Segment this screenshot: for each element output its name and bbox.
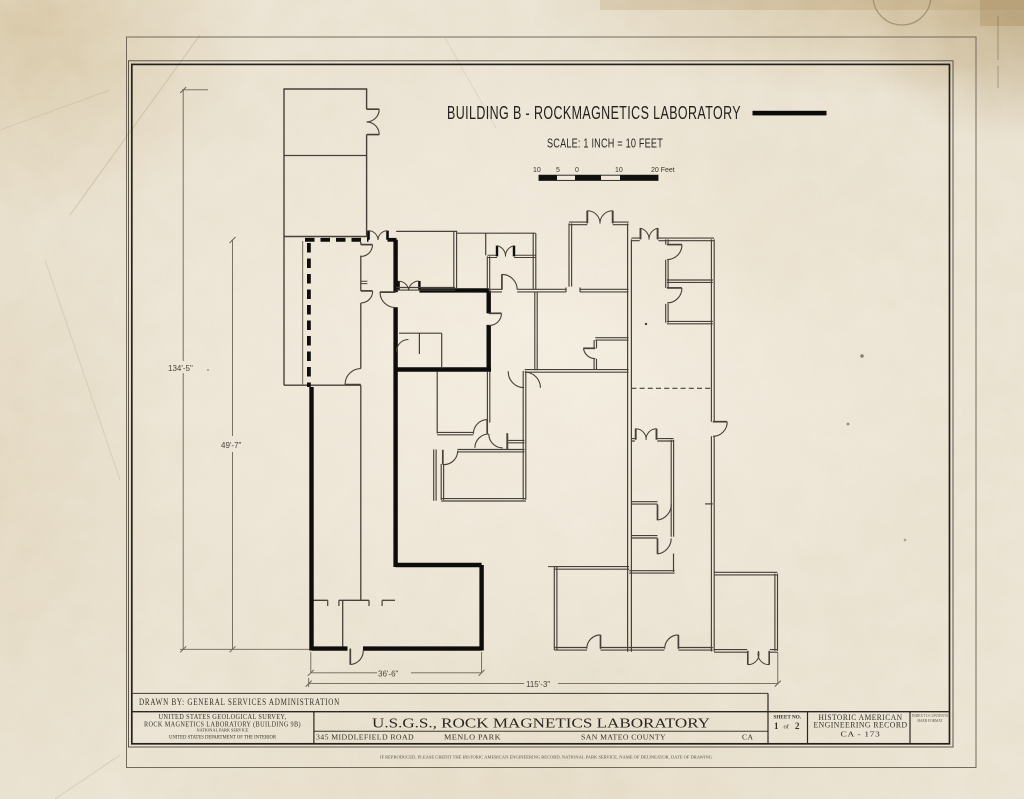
svg-text:NATIONAL PARK SERVICE: NATIONAL PARK SERVICE	[197, 728, 249, 733]
svg-text:0: 0	[575, 167, 579, 174]
svg-text:2: 2	[795, 721, 800, 731]
svg-text:SHEET NO.: SHEET NO.	[774, 715, 802, 721]
svg-text:DRAWN BY: GENERAL SERVICES AD: DRAWN BY: GENERAL SERVICES ADMINISTRATIO…	[139, 698, 340, 708]
svg-text:10: 10	[533, 167, 541, 174]
svg-text:MENLO PARK: MENLO PARK	[444, 733, 501, 742]
svg-text:UNITED STATES DEPARTMENT OF TH: UNITED STATES DEPARTMENT OF THE INTERIOR	[169, 736, 277, 741]
svg-text:SAN MATEO COUNTY: SAN MATEO COUNTY	[581, 733, 666, 742]
svg-text:134'-5": 134'-5"	[168, 364, 193, 373]
svg-text:36'-6": 36'-6"	[378, 670, 399, 679]
svg-text:U.S.G.S., ROCK MAGNETICS LA: U.S.G.S., ROCK MAGNETICS LABORATORY	[372, 716, 710, 731]
svg-text:CA: CA	[742, 733, 753, 742]
svg-text:5: 5	[556, 167, 560, 174]
svg-text:INDEX TO CONTENTS: INDEX TO CONTENTS	[912, 714, 948, 718]
svg-text:BUILDING B - ROCKMAGNETICS LAB: BUILDING B - ROCKMAGNETICS LABORATORY	[447, 103, 741, 123]
svg-text:CA - 173: CA - 173	[841, 730, 881, 739]
svg-text:115'-3": 115'-3"	[526, 680, 550, 689]
svg-text:ENGINEERING RECORD: ENGINEERING RECORD	[814, 721, 908, 730]
svg-text:1: 1	[774, 721, 779, 731]
svg-text:20 Feet: 20 Feet	[651, 167, 675, 174]
svg-text:10: 10	[615, 167, 623, 174]
svg-text:345 MIDDLEFIELD ROAD: 345 MIDDLEFIELD ROAD	[316, 733, 414, 742]
svg-text:of: of	[784, 724, 790, 731]
svg-text:49'-7": 49'-7"	[221, 441, 242, 450]
svg-text:SCALE: 1 INCH = 10 FEET: SCALE: 1 INCH = 10 FEET	[547, 137, 663, 151]
svg-text:HAER FORMAT: HAER FORMAT	[917, 719, 943, 723]
svg-text:UNITED STATES GEOLOGICAL SURVE: UNITED STATES GEOLOGICAL SURVEY,	[159, 714, 287, 721]
